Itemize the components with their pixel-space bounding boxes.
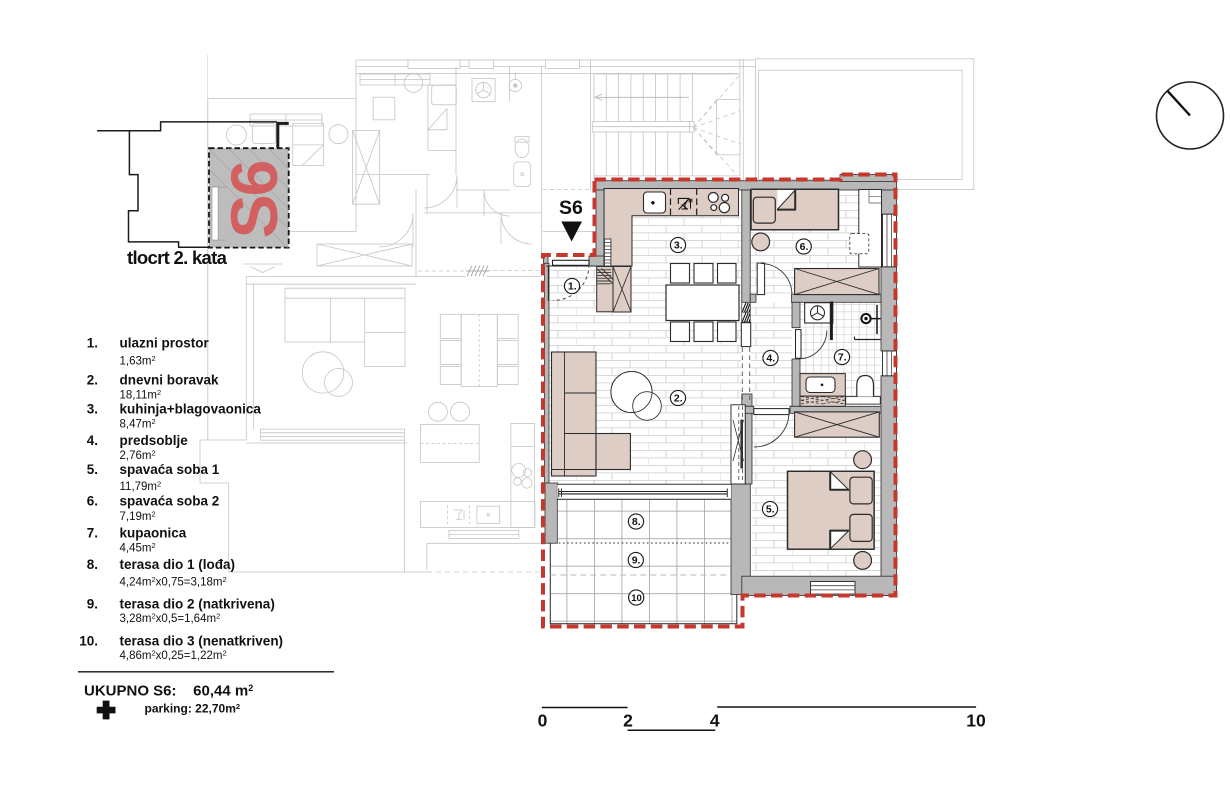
svg-text:8.: 8. xyxy=(632,516,641,528)
svg-text:2.: 2. xyxy=(674,393,683,405)
svg-text:S6: S6 xyxy=(559,197,583,219)
svg-text:kuhinja+blagovaonica: kuhinja+blagovaonica xyxy=(120,402,262,417)
svg-text:8.: 8. xyxy=(87,557,98,572)
svg-text:parking: 22,70m2: parking: 22,70m2 xyxy=(145,702,241,716)
svg-text:11,79m2: 11,79m2 xyxy=(120,480,162,494)
svg-text:9.: 9. xyxy=(632,555,641,567)
svg-text:10: 10 xyxy=(966,711,986,731)
svg-text:3,28m2x0,5=1,64m2: 3,28m2x0,5=1,64m2 xyxy=(120,612,221,626)
svg-text:18,11m2: 18,11m2 xyxy=(120,388,162,402)
svg-text:terasa dio 3 (nenatkriven): terasa dio 3 (nenatkriven) xyxy=(120,634,284,649)
svg-text:0: 0 xyxy=(538,711,548,731)
svg-text:9.: 9. xyxy=(87,597,98,612)
svg-text:6.: 6. xyxy=(87,494,98,509)
svg-text:terasa dio 2 (natkrivena): terasa dio 2 (natkrivena) xyxy=(120,597,275,612)
svg-text:predsoblje: predsoblje xyxy=(120,433,189,448)
svg-text:4,45m2: 4,45m2 xyxy=(120,541,156,555)
svg-text:4: 4 xyxy=(710,711,720,731)
svg-text:4,24m2x0,75=3,18m2: 4,24m2x0,75=3,18m2 xyxy=(120,575,227,589)
svg-text:7.: 7. xyxy=(87,526,98,541)
svg-text:3.: 3. xyxy=(674,240,683,252)
svg-text:2: 2 xyxy=(623,711,633,731)
svg-text:terasa dio 1 (lođa): terasa dio 1 (lođa) xyxy=(120,557,236,572)
svg-text:4.: 4. xyxy=(87,433,98,448)
svg-text:1.: 1. xyxy=(568,281,577,293)
svg-text:ulazni prostor: ulazni prostor xyxy=(120,336,210,351)
svg-text:2.: 2. xyxy=(87,373,98,388)
svg-text:5.: 5. xyxy=(87,462,98,477)
svg-text:8,47m2: 8,47m2 xyxy=(120,417,156,431)
svg-text:6.: 6. xyxy=(800,241,809,253)
svg-text:UKUPNO S6: 60,44 m2: UKUPNO S6: 60,44 m2 xyxy=(84,683,253,700)
svg-text:10: 10 xyxy=(631,593,642,604)
svg-text:spavaća soba 2: spavaća soba 2 xyxy=(120,494,220,509)
svg-text:2,76m2: 2,76m2 xyxy=(120,449,156,463)
svg-text:1.: 1. xyxy=(87,336,98,351)
svg-text:10.: 10. xyxy=(79,634,98,649)
svg-text:dnevni boravak: dnevni boravak xyxy=(120,373,220,388)
svg-text:7,19m2: 7,19m2 xyxy=(120,510,156,524)
svg-text:S6: S6 xyxy=(217,161,291,238)
svg-text:3.: 3. xyxy=(87,402,98,417)
svg-text:spavaća soba 1: spavaća soba 1 xyxy=(120,462,220,477)
svg-text:5.: 5. xyxy=(766,504,775,516)
svg-text:tlocrt 2. kata: tlocrt 2. kata xyxy=(127,247,228,268)
svg-text:4.: 4. xyxy=(766,353,775,365)
svg-text:kupaonica: kupaonica xyxy=(120,526,187,541)
svg-text:1,63m2: 1,63m2 xyxy=(120,354,156,368)
svg-text:4,86m2x0,25=1,22m2: 4,86m2x0,25=1,22m2 xyxy=(120,649,227,663)
svg-text:7.: 7. xyxy=(838,352,847,364)
